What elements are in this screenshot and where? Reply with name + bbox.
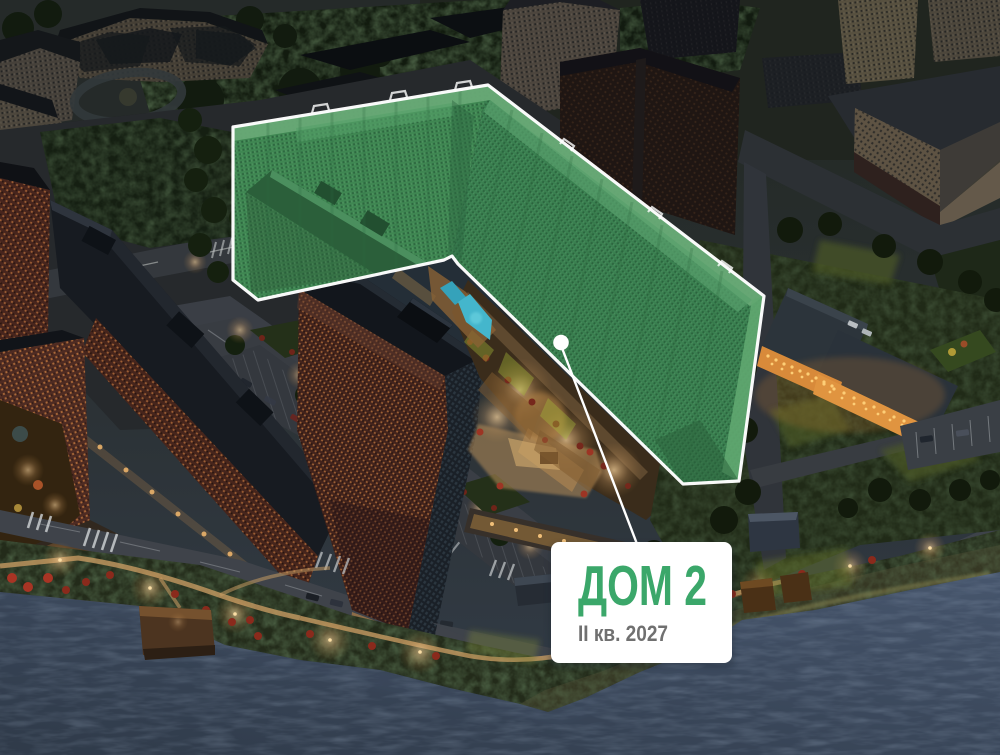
svg-text:ДОМ 2: ДОМ 2	[578, 554, 707, 618]
svg-text:II кв. 2027: II кв. 2027	[578, 621, 668, 646]
